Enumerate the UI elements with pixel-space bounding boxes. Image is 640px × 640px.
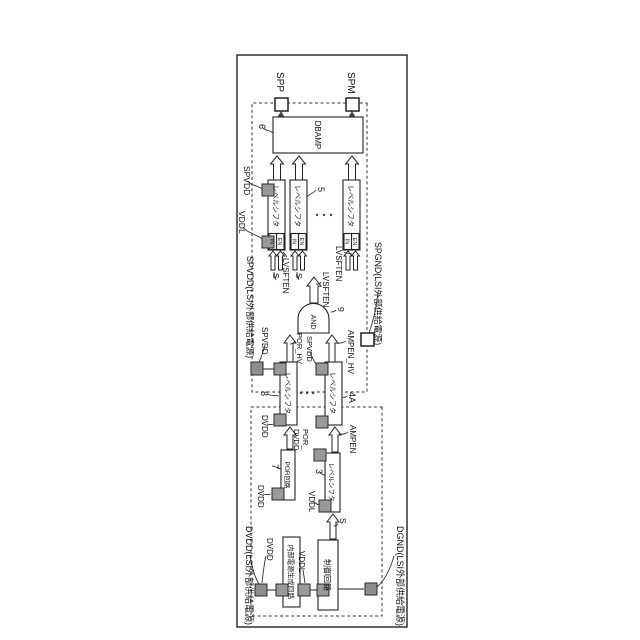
vddl-label-mid: VDDL [297, 551, 306, 573]
ampen-arrow [329, 427, 341, 452]
ref-7: 7 [270, 464, 280, 469]
en-input-arrow-5b [299, 251, 307, 270]
leader [331, 310, 336, 312]
ref-8: 8 [259, 391, 269, 396]
leader [339, 432, 348, 434]
spgnd-external-label: SPGND(LSI外部供給電源) [373, 242, 384, 345]
spvdd-label-extpad: SPVDD [260, 327, 269, 355]
ref-5: 5 [316, 187, 326, 192]
vddl-label-ls3: VDDL [307, 491, 316, 513]
leader [342, 396, 347, 397]
dvdd-pad-por [272, 488, 284, 500]
ls5b-to-dbamp-arrow [293, 156, 306, 180]
dgnd-external-pad [365, 583, 377, 595]
internal-power-circuit-label: 内部電源生成回路 [287, 545, 296, 600]
dbamp-label: DBAMP [313, 121, 322, 149]
dgnd-external-label: DGND(LSI外部供給電源) [395, 526, 406, 626]
ref-9: 9 [336, 307, 346, 312]
level-shifter-3-label: レベルシフタ [328, 463, 337, 502]
ampen-label: AMPEN [348, 425, 357, 454]
vddl-pad-ls3 [319, 500, 331, 512]
en-pin-label: EN [298, 238, 304, 246]
dvdd-label-ls8: DVDD [260, 415, 269, 438]
spvdd-external-label: SPVDD(LSI外部供給電源) [245, 256, 256, 358]
spvdd-label-ls5: SPVDD [242, 166, 252, 195]
dot [306, 392, 308, 394]
level-shifter-5c-label: レベルシフタ [347, 185, 356, 227]
vddl-label-ls5: VDDL [237, 211, 247, 234]
spgnd-external-pad [361, 333, 374, 346]
spvdd-external-pad [251, 362, 263, 375]
in-pin-label: IN [269, 239, 275, 245]
leader [307, 190, 316, 197]
dvdd-external-pad [255, 584, 267, 596]
ref-6: 6 [257, 124, 267, 129]
dot [316, 214, 318, 216]
s-signal-label-a: S [271, 273, 281, 279]
level-shifter-5b-label: レベルシフタ [294, 185, 303, 227]
control-circuit-label: 制御回路 [323, 559, 333, 591]
dvdd-pad-ls8 [274, 414, 286, 426]
s-signal-arrow [327, 514, 339, 539]
spp-output-pad [275, 98, 288, 111]
level-shifter-4a-label: レベルシフタ [329, 372, 338, 414]
internal-power-pad [276, 584, 288, 596]
ref-3: 3 [314, 469, 324, 474]
patent-figure-page: SPP SPM DBAMP 6 レベルシフタ レベルシフタ レベルシフタ 5 E… [0, 0, 640, 640]
dvdd-pad-ls3 [314, 449, 326, 461]
dvdd-label-por: DVDD [256, 485, 265, 508]
spm-output-pad [346, 98, 359, 111]
dvdd-pad-ls4a [316, 416, 328, 428]
ampen-hv-label: AMPEN_HV [346, 330, 355, 375]
dot [330, 214, 332, 216]
spvdd-pad-ls4a [316, 363, 328, 375]
leader-lines [243, 128, 394, 587]
ls5c-to-dbamp-arrow [346, 156, 359, 180]
arrowhead [278, 111, 285, 117]
arrowhead [349, 111, 356, 117]
dvdd-label-internal: DVDD [265, 538, 274, 561]
dot [300, 392, 302, 394]
lvsften-label-3: LVSFTEN [334, 246, 343, 282]
leader [377, 556, 394, 587]
por-hv-arrow [284, 335, 296, 362]
circuit-diagram: SPP SPM DBAMP 6 レベルシフタ レベルシフタ レベルシフタ 5 E… [0, 0, 640, 640]
por-circuit-label: POR回路 [283, 461, 292, 489]
in-input-arrow-5b [291, 251, 299, 270]
dot [312, 392, 314, 394]
por-hv-label: POR_HV [295, 333, 304, 364]
in-input-arrow-5a [269, 251, 277, 270]
por-dvdd-label-line2: DVDD [292, 429, 301, 451]
level-shifter-5a-label: レベルシフタ [272, 185, 281, 227]
ls5a-to-dbamp-arrow [271, 156, 284, 180]
in-pin-label: IN [291, 239, 297, 245]
dvdd-external-label: DVDD(LSI外部供給電源) [244, 526, 255, 625]
lvsften-label-2: LVSFTEN [321, 272, 330, 308]
dot [323, 214, 325, 216]
en-pin-label: EN [351, 238, 357, 246]
vddl-pad [298, 584, 310, 596]
spvdd-label-ls4a: SPVDD [305, 336, 314, 362]
s-signal-label-ctrl: S [338, 518, 348, 524]
level-shifter-8-label: レベルシフタ [284, 372, 293, 414]
lvsften-arrow [307, 277, 321, 303]
spp-label: SPP [274, 72, 285, 92]
lvsften-label-1: LVSFTEN [281, 258, 290, 294]
in-pin-label: IN [344, 239, 350, 245]
and-gate-label: AND [309, 315, 316, 330]
por-dvdd-label-line1: POR_ [301, 429, 310, 450]
en-pin-label: EN [276, 238, 282, 246]
en-input-arrow-5c [352, 251, 360, 270]
ampen-hv-arrow [326, 335, 338, 362]
ref-4a: 4A [347, 392, 357, 403]
diagram-rotated-group: SPP SPM DBAMP 6 レベルシフタ レベルシフタ レベルシフタ 5 E… [237, 55, 407, 627]
s-signal-label-b: S [294, 273, 304, 279]
spm-label: SPM [345, 72, 356, 94]
